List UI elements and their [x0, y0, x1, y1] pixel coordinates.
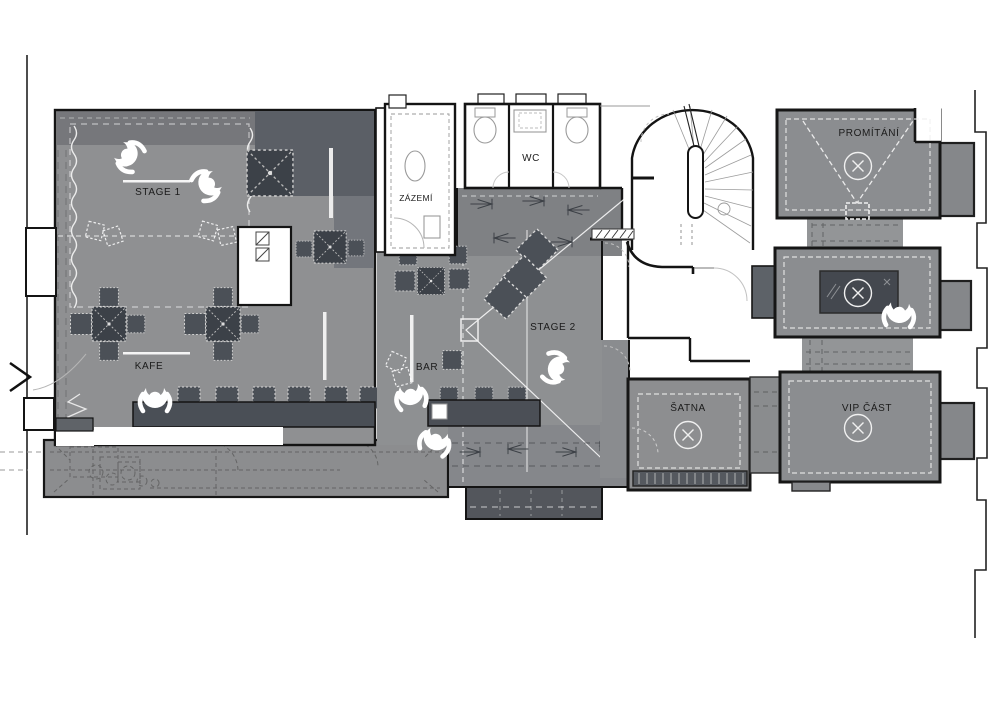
toilet-icon	[566, 108, 588, 143]
room-promitani	[777, 108, 974, 219]
door-arc	[714, 268, 747, 301]
coat-rack-icon	[633, 471, 747, 486]
floor-plan: STAGE 1 KAFE ZÁZEMÍ WC BAR STAGE 2 ŠATNA…	[0, 0, 1000, 707]
toilet-icon	[474, 108, 496, 143]
sink-icon	[424, 216, 440, 238]
room-wc	[465, 94, 600, 188]
label-stage-2: STAGE 2	[530, 322, 576, 333]
label-vip: VIP ČÁST	[842, 401, 892, 414]
window-bay	[26, 228, 56, 296]
room-vip	[780, 372, 974, 491]
label-bar: BAR	[416, 362, 438, 373]
window-bay	[24, 398, 54, 430]
sink-icon	[432, 404, 447, 419]
table-x-icon	[247, 150, 293, 196]
label-satna: ŠATNA	[670, 401, 706, 414]
label-zazemi: ZÁZEMÍ	[399, 193, 433, 203]
room-lounge	[775, 248, 971, 337]
toilet-icon	[405, 151, 425, 181]
window-bay	[938, 143, 974, 216]
chair-icon	[348, 240, 364, 256]
label-promitani: PROMÍTÁNÍ	[839, 126, 900, 139]
room-stage1-kafe-block	[24, 110, 382, 446]
room-zazemi	[376, 95, 455, 255]
window-bay	[938, 403, 974, 459]
label-wc: WC	[522, 153, 540, 164]
window-bay	[938, 281, 971, 330]
electrical-room	[238, 227, 291, 305]
chair-icon	[296, 241, 312, 257]
entrance-steps	[466, 487, 602, 519]
sink-icon	[514, 110, 546, 132]
table-x-icon	[314, 231, 346, 263]
right-wing	[750, 108, 974, 491]
label-kafe: KAFE	[135, 361, 164, 372]
stair-hatch-rail	[592, 229, 634, 239]
floor-plan-drawing: STAGE 1 KAFE ZÁZEMÍ WC BAR STAGE 2 ŠATNA…	[0, 0, 1000, 707]
label-stage-1: STAGE 1	[135, 187, 181, 198]
